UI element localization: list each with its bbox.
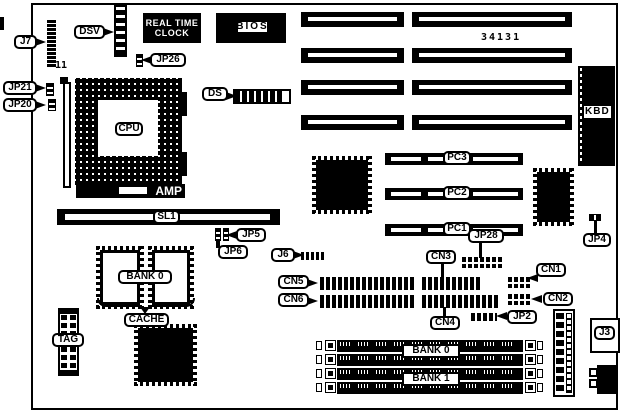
cn4-connector [422, 295, 499, 308]
isa-slot-1-left [301, 12, 404, 27]
mouse-connector [597, 365, 618, 394]
isa-slot-2-left [301, 48, 404, 63]
jp20-label: JP20 [3, 98, 37, 112]
cpu-lever [63, 82, 71, 188]
ds-component-end [283, 91, 289, 102]
cache-brace-left [97, 298, 142, 307]
cache-label: CACHE [124, 313, 169, 327]
isa-slot-1-right [412, 12, 572, 27]
j7-label: J7 [14, 35, 37, 49]
jp4-label: JP4 [583, 233, 611, 247]
cn2-header [508, 294, 532, 305]
qfp-chip-cache-controller [138, 328, 193, 382]
jp6-label: JP6 [218, 245, 248, 259]
j6-connector [301, 252, 326, 260]
j7-pin-count: 11 [55, 60, 67, 72]
cn5-label: CN5 [278, 275, 309, 289]
cn6-label: CN6 [278, 293, 309, 307]
cn6-connector [320, 295, 414, 308]
page-edge-mark [0, 17, 4, 30]
jp5-label: JP5 [236, 228, 266, 242]
power-connector-strip [566, 313, 572, 393]
jp28-header [462, 257, 502, 268]
tag-socket-bottom [60, 370, 77, 374]
isa-slot-4-left [301, 115, 404, 130]
cache-brace-right [150, 298, 195, 307]
pc2-label: PC2 [443, 186, 471, 200]
ds-label: DS [202, 87, 228, 101]
jp2-callout-arm [496, 312, 507, 320]
rtc-label-line2: CLOCK [155, 28, 190, 38]
qfp-chip-right [537, 172, 570, 222]
amp-window [119, 187, 147, 194]
cn3-connector [422, 277, 482, 290]
cpu-tab-bottom [181, 152, 187, 176]
isa-slot-4-right [412, 115, 572, 130]
tag-socket-top [60, 310, 77, 314]
cn3-callout-arm [441, 264, 444, 278]
keyboard-connector-dashes [580, 68, 582, 164]
isa-slot-3-left [301, 80, 404, 95]
jp20-jumper [48, 99, 56, 111]
pc3-label: PC3 [443, 151, 471, 165]
rtc-chip: REAL TIME CLOCK [143, 13, 201, 43]
jp2-header [471, 313, 497, 321]
cpu-tab-top [181, 92, 187, 116]
bios-label: BIOS [236, 20, 269, 34]
cache-bank0-label: BANK 0 [118, 270, 172, 284]
cn4-label: CN4 [430, 316, 460, 330]
sl1-label: SL1 [153, 210, 180, 224]
part-number: 34131 [481, 32, 521, 44]
cn2-label: CN2 [543, 292, 573, 306]
jp21-label: JP21 [3, 81, 37, 95]
power-connector [553, 309, 575, 397]
amp-bar: AMP [76, 184, 185, 198]
jp2-label: JP2 [507, 310, 537, 324]
motherboard-diagram: 11 J7 DSV REAL TIME CLOCK BIOS JP26 JP21… [0, 0, 622, 415]
cn3-label: CN3 [426, 250, 456, 264]
ds-component [233, 89, 291, 104]
cn5-connector [320, 277, 414, 290]
pc1-label: PC1 [443, 222, 471, 236]
cn2-callout-arm [531, 295, 542, 303]
isa-slot-2-right [412, 48, 572, 63]
kbd-label: KBD [584, 106, 611, 118]
bank0-label: BANK 0 [402, 344, 460, 358]
jp28-callout-arm [479, 243, 482, 258]
tag-label: TAG [52, 333, 84, 347]
mouse-connector-tab-2 [589, 379, 598, 388]
dsv-component [114, 5, 127, 57]
power-connector-pins [556, 313, 564, 393]
isa-slot-3-right [412, 80, 572, 95]
amp-label: AMP [155, 184, 182, 198]
mouse-connector-tab-1 [589, 368, 598, 377]
cn1-label: CN1 [536, 263, 566, 277]
j3-label: J3 [594, 326, 615, 340]
jp21-jumper [46, 83, 54, 96]
jp26-label: JP26 [150, 53, 186, 67]
qfp-chip-left [316, 160, 368, 210]
bank1-label: BANK 1 [402, 372, 460, 386]
rtc-label-line1: REAL TIME [146, 18, 199, 28]
jp4-jumper [589, 214, 601, 221]
jp28-label: JP28 [468, 229, 504, 243]
cpu-label: CPU [115, 122, 143, 136]
dsv-label: DSV [74, 25, 105, 39]
j6-label: J6 [271, 248, 295, 262]
